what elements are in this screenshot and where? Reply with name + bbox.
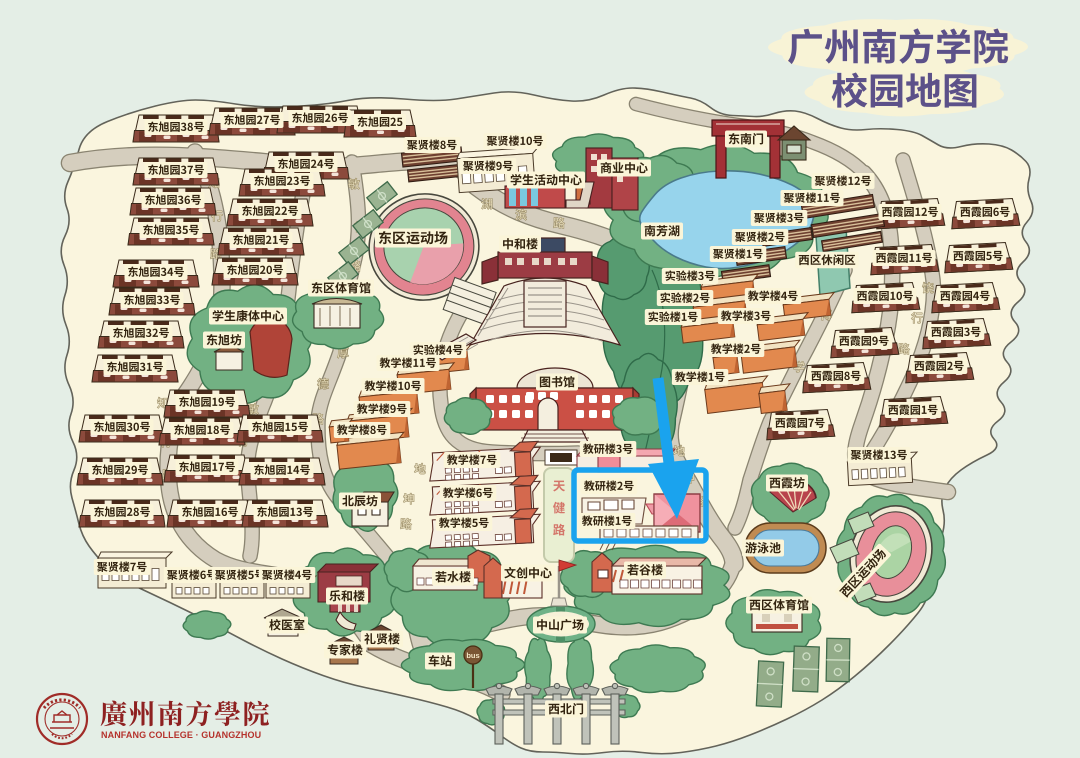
svg-text:bus: bus (466, 651, 479, 660)
svg-text:NANFANG COLLEGE · GUANGZHOU: NANFANG COLLEGE · GUANGZHOU (101, 730, 261, 740)
